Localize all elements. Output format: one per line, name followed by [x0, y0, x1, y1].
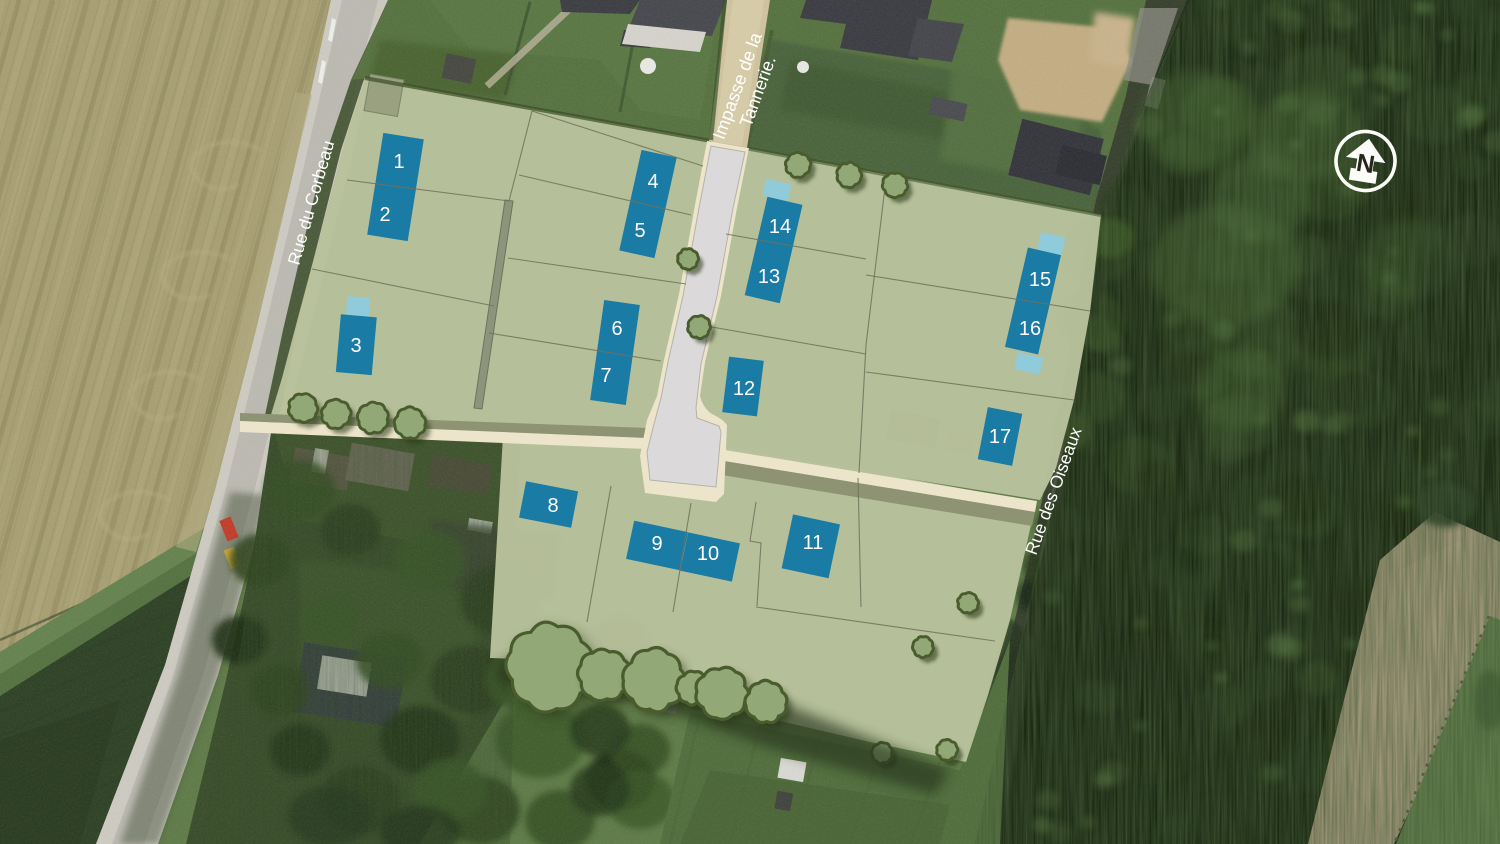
svg-text:6: 6: [611, 318, 622, 340]
svg-text:3: 3: [350, 335, 361, 357]
svg-text:1: 1: [393, 151, 404, 173]
svg-text:9: 9: [651, 533, 662, 555]
svg-text:17: 17: [989, 426, 1011, 448]
svg-text:2: 2: [379, 204, 390, 226]
svg-text:7: 7: [600, 365, 611, 387]
svg-text:4: 4: [647, 171, 658, 193]
svg-text:5: 5: [634, 220, 645, 242]
svg-text:10: 10: [697, 543, 719, 565]
svg-text:14: 14: [769, 216, 791, 238]
svg-text:16: 16: [1019, 318, 1041, 340]
svg-text:12: 12: [733, 378, 755, 400]
svg-text:11: 11: [803, 532, 824, 554]
svg-text:8: 8: [547, 495, 558, 517]
svg-text:15: 15: [1029, 269, 1051, 291]
svg-text:13: 13: [758, 266, 780, 288]
